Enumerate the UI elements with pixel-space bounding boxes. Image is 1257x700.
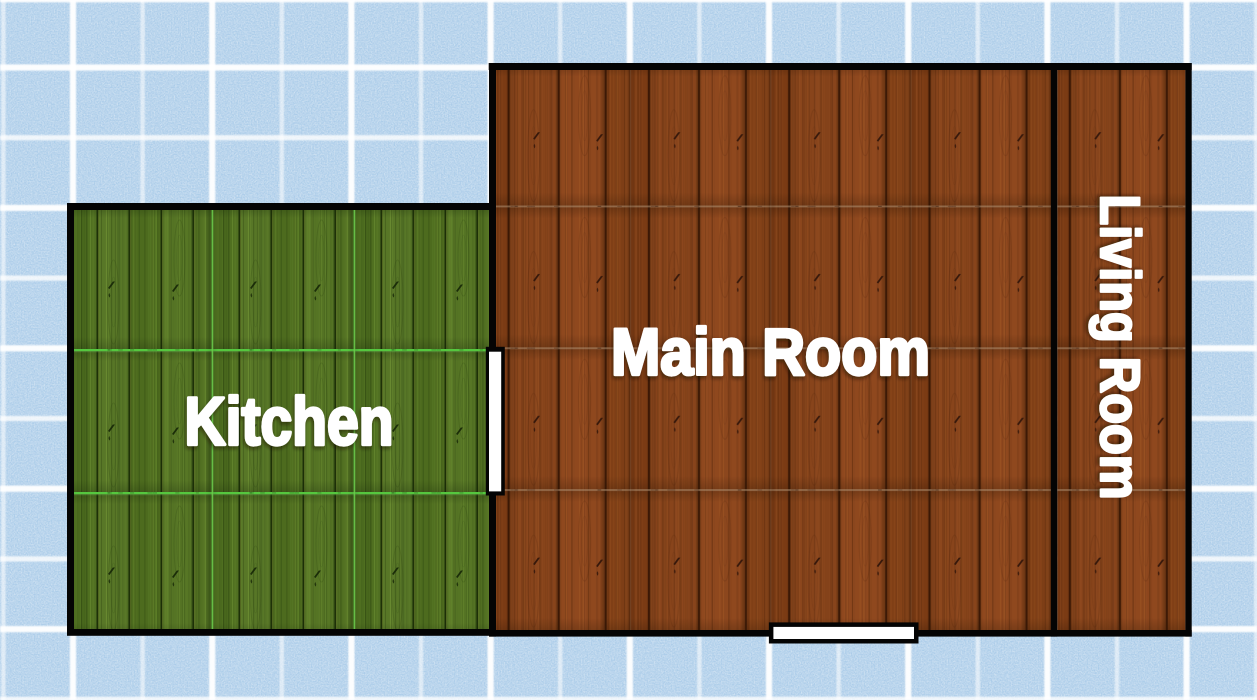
svg-text:Living Room: Living Room bbox=[1088, 194, 1150, 499]
svg-text:Main Room: Main Room bbox=[611, 316, 930, 390]
svg-text:Kitchen: Kitchen bbox=[184, 384, 393, 460]
